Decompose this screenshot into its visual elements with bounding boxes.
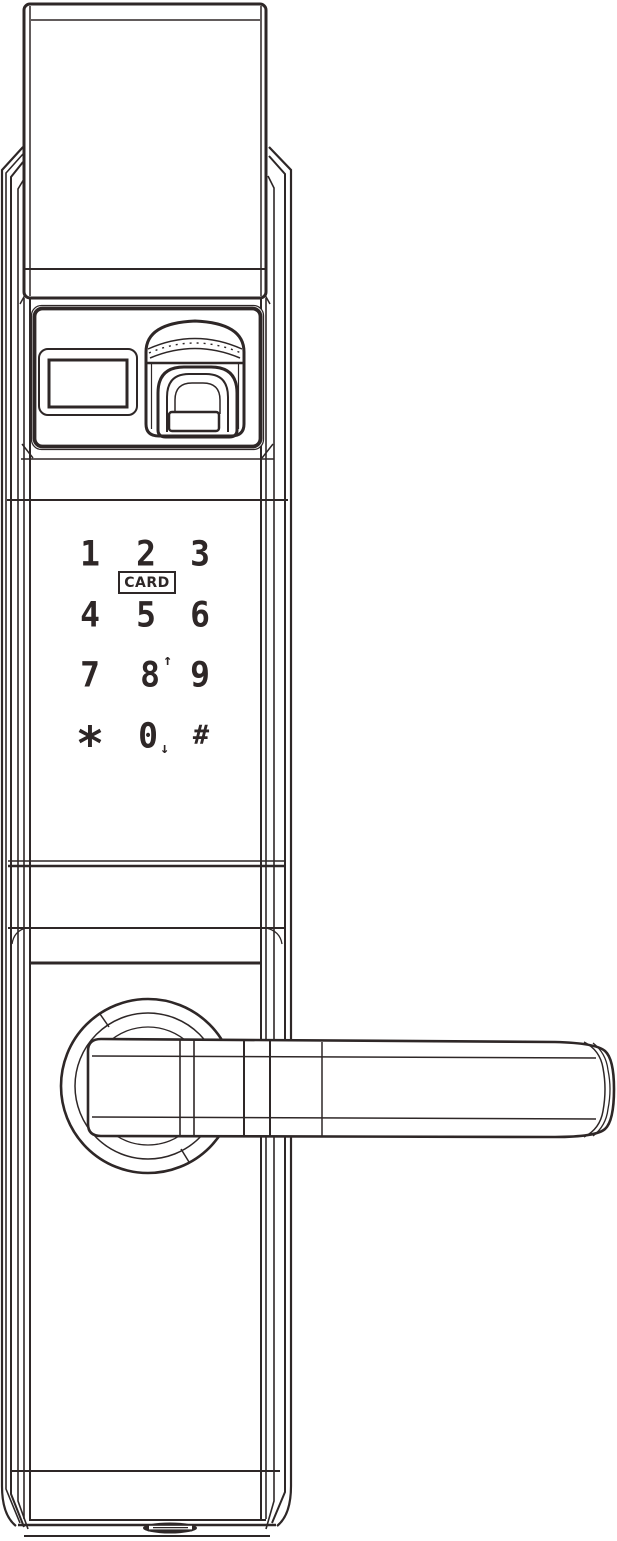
keypad-key-star[interactable]: *	[60, 705, 120, 765]
key-label: 8	[140, 657, 160, 691]
key-label: 0	[138, 718, 158, 752]
keypad-key-4[interactable]: 4	[60, 584, 120, 644]
key-label: 2	[136, 536, 156, 570]
keypad-key-7[interactable]: 7	[60, 644, 120, 704]
card-label-text: CARD	[124, 575, 170, 591]
sensor-panel	[22, 306, 273, 459]
key-label: 9	[190, 657, 210, 691]
key-label: 5	[136, 597, 156, 631]
smart-lock-front-view: 1 2 3 4 5 6 7 8↑ 9 * 0↓ # CARD	[0, 0, 617, 1541]
keypad-key-hash[interactable]: #	[171, 705, 231, 765]
keypad-key-9[interactable]: 9	[170, 644, 230, 704]
key-label: 1	[80, 536, 100, 570]
door-lever-handle[interactable]	[61, 999, 614, 1173]
bottom-screw-port	[143, 1523, 197, 1534]
key-label: 4	[80, 597, 100, 631]
fingerprint-scanner-icon[interactable]	[146, 321, 244, 437]
handle-lever[interactable]	[88, 1039, 614, 1137]
key-label: 7	[80, 657, 100, 691]
key-label: 3	[190, 536, 210, 570]
top-cap	[20, 4, 270, 304]
keypad-key-3[interactable]: 3	[170, 523, 230, 583]
key-label: *	[76, 721, 104, 768]
key-label: 6	[190, 597, 210, 631]
card-reader-label[interactable]: CARD	[118, 571, 176, 594]
keypad-key-1[interactable]: 1	[60, 523, 120, 583]
down-arrow-icon: ↓	[160, 741, 169, 756]
keypad-key-0[interactable]: 0↓	[118, 705, 178, 765]
key-label: #	[193, 722, 209, 749]
keypad-key-6[interactable]: 6	[170, 584, 230, 644]
